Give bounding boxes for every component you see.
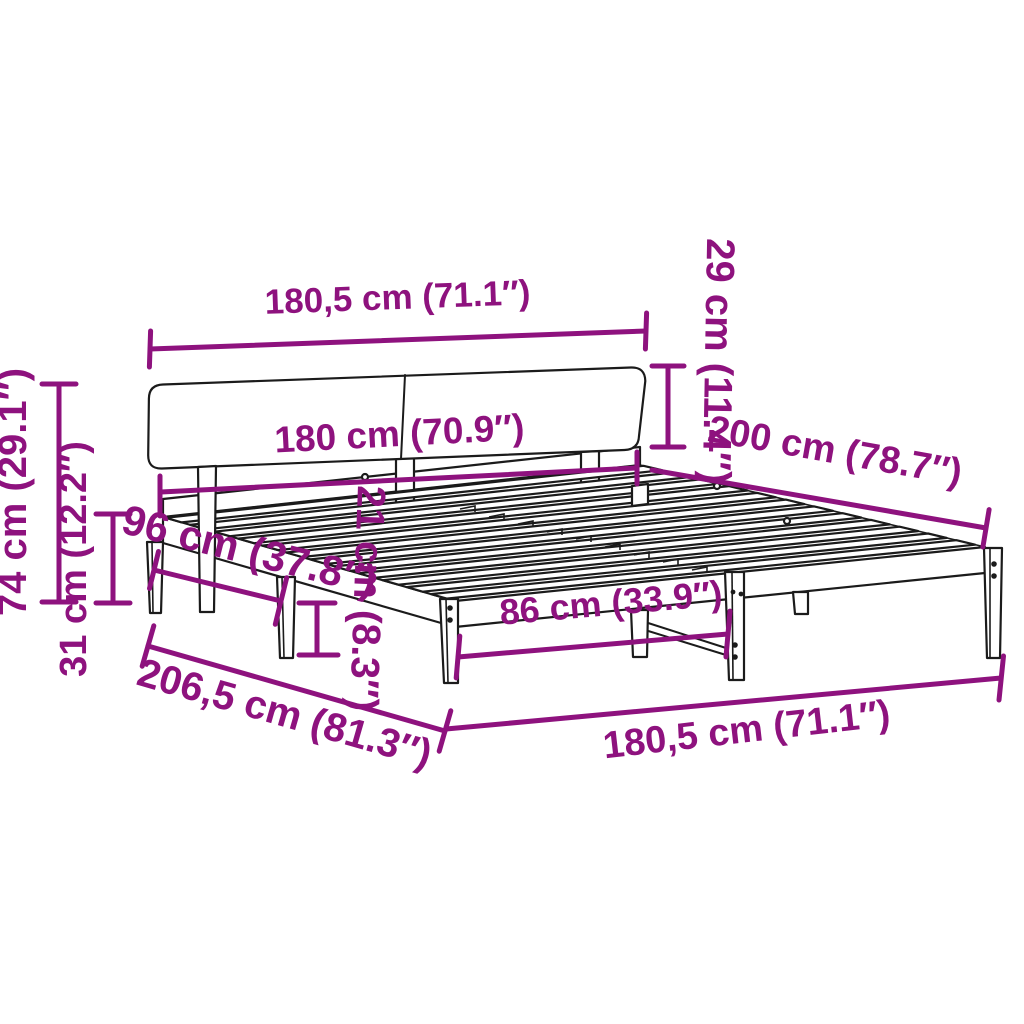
dim-underbed-clearance-label: 21 cm (8.3″): [341, 485, 393, 712]
dim-frame-top-height: 31 cm (12.2″): [53, 441, 130, 677]
leg-edge: [732, 572, 733, 680]
dim-bed-length-label: 200 cm (78.7″): [705, 408, 965, 494]
dim-headboard-total-height-label: 74 cm (29.1″): [0, 368, 35, 616]
diagram-canvas: 180,5 cm (71.1″) 29 cm (11.4″) 180 cm (7…: [0, 0, 1024, 1024]
support-block: [793, 592, 808, 614]
slat-peg: [784, 518, 790, 524]
dim-frame-width-label: 180,5 cm (71.1″): [601, 693, 893, 767]
corner-bracket: [632, 484, 648, 506]
dim-headboard-width-label: 180,5 cm (71.1″): [264, 273, 531, 322]
dim-headboard-width: 180,5 cm (71.1″): [149, 273, 646, 367]
dim-frame-top-height-label: 31 cm (12.2″): [53, 441, 95, 677]
dim-frame-width: 180,5 cm (71.1″): [446, 656, 1004, 767]
slat-peg: [362, 474, 368, 480]
bed-frame-drawing: [147, 367, 1002, 683]
bed-frame-dimension-diagram: 180,5 cm (71.1″) 29 cm (11.4″) 180 cm (7…: [0, 0, 1024, 1024]
